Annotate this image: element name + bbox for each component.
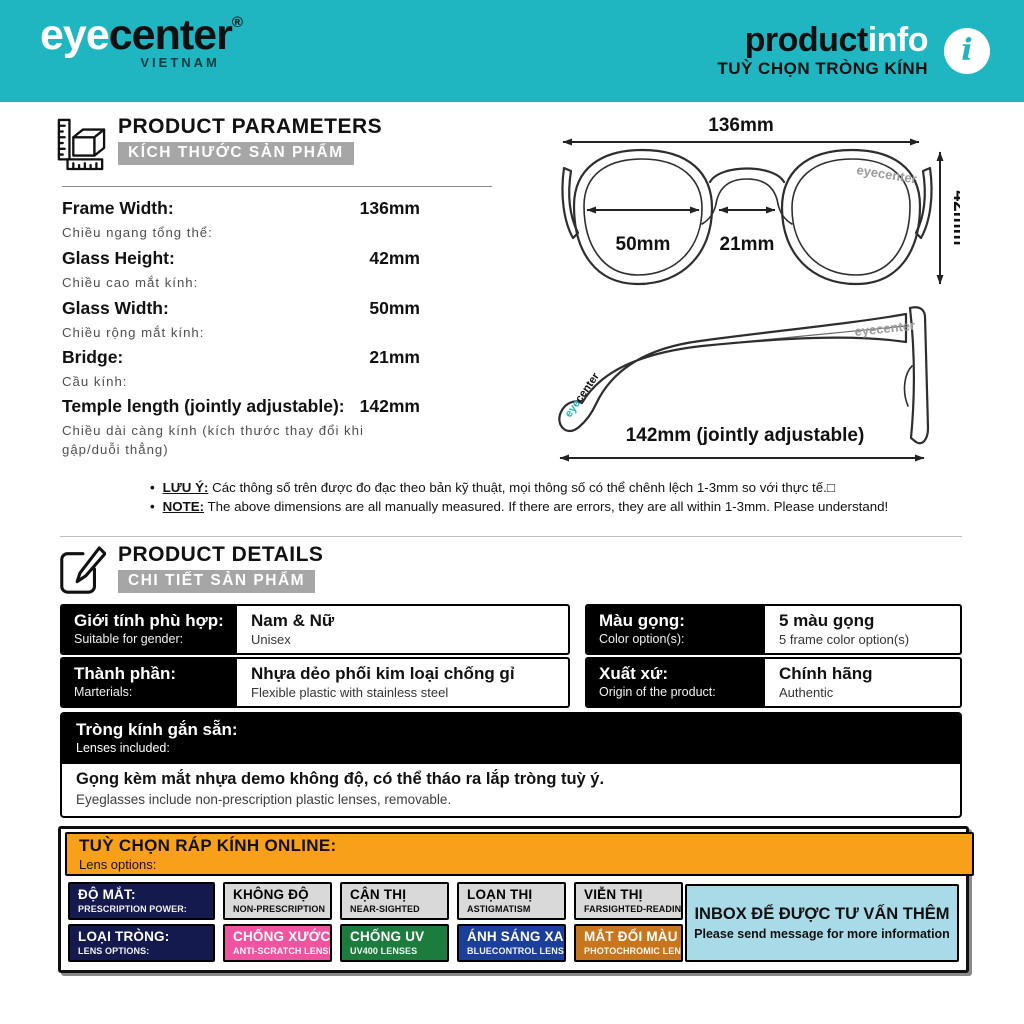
badge-lens-options: LOẠI TRÒNG: LENS OPTIONS: — [68, 924, 215, 962]
lens-options-header: TUỲ CHỌN RÁP KÍNH ONLINE: Lens options: — [65, 832, 974, 876]
detail-cell-materials: Thành phần: Marterials: Nhựa dẻo phối ki… — [60, 657, 570, 708]
registered-mark-icon: ® — [232, 14, 242, 31]
notes: • LƯU Ý: Các thông số trên được đo đạc t… — [150, 479, 890, 516]
param-row-bridge: Bridge: Cầu kính: 21mm — [62, 347, 420, 391]
param-row-temple-length: Temple length (jointly adjustable): Chiề… — [62, 396, 420, 459]
param-row-frame-width: Frame Width: Chiều ngang tổng thể: 136mm — [62, 198, 420, 242]
bridge-label: 21mm — [720, 234, 775, 255]
lenses-included-label: Tròng kính gắn sẵn: — [76, 720, 946, 740]
parameters-subtitle-badge: KÍCH THƯỚC SẢN PHẨM — [118, 142, 354, 165]
lens-width-label: 50mm — [616, 234, 671, 255]
prescription-row: ĐỘ MẮT: PRESCRIPTION POWER: KHÔNG ĐỘ NON… — [68, 882, 683, 920]
details-section-header: PRODUCT DETAILS CHI TIẾT SẢN PHẨM — [56, 544, 323, 598]
lenses-included-value-en: Eyeglasses include non-prescription plas… — [76, 792, 946, 807]
details-subtitle-badge: CHI TIẾT SẢN PHẨM — [118, 570, 315, 593]
info-icon: i — [944, 28, 990, 74]
badge-bluecontrol: ÁNH SÁNG XANH BLUECONTROL LENSES — [457, 924, 566, 962]
lenses-included-label-en: Lenses included: — [76, 741, 946, 755]
ruler-cube-icon — [56, 116, 106, 172]
brand-wordmark: eyecenter® — [40, 12, 242, 59]
badge-prescription-power: ĐỘ MẮT: PRESCRIPTION POWER: — [68, 882, 215, 920]
glasses-side-diagram: eyecenter eyecenter 142mm (jointly adjus… — [550, 300, 960, 470]
divider — [62, 186, 492, 187]
badge-photochromic: MẮT ĐỔI MÀU PHOTOCHROMIC LENSES — [574, 924, 683, 962]
temple-length-label: 142mm (jointly adjustable) — [626, 425, 865, 446]
brand-logo: eyecenter® VIETNAM — [40, 12, 242, 70]
front-width-label: 136mm — [708, 115, 774, 136]
note-english: • NOTE: The above dimensions are all man… — [150, 498, 890, 517]
badge-near-sighted: CẬN THỊ NEAR-SIGHTED — [340, 882, 449, 920]
parameters-section-header: PRODUCT PARAMETERS KÍCH THƯỚC SẢN PHẨM — [56, 116, 382, 172]
lens-type-row: LOẠI TRÒNG: LENS OPTIONS: CHỐNG XƯỚC ANT… — [68, 924, 683, 962]
page-title: productinfo — [717, 23, 928, 59]
param-row-glass-height: Glass Height: Chiều cao mắt kính: 42mm — [62, 248, 420, 292]
badge-non-prescription: KHÔNG ĐỘ NON-PRESCRIPTION — [223, 882, 332, 920]
detail-cell-gender: Giới tính phù hợp: Suitable for gender: … — [60, 604, 570, 655]
product-info-sheet: eyecenter® VIETNAM productinfo TUỲ CHỌN … — [0, 0, 1024, 1024]
parameters-title: PRODUCT PARAMETERS — [118, 116, 382, 137]
detail-cell-origin: Xuất xứ: Origin of the product: Chính hã… — [585, 657, 962, 708]
inbox-cta: INBOX ĐỂ ĐƯỢC TƯ VẤN THÊM Please send me… — [685, 884, 959, 962]
brand-center: center — [109, 11, 232, 59]
front-height-label: 42mm — [949, 191, 960, 246]
title-product: product — [745, 21, 868, 59]
badge-astigmatism: LOẠN THỊ ASTIGMATISM — [457, 882, 566, 920]
header: eyecenter® VIETNAM productinfo TUỲ CHỌN … — [0, 0, 1024, 102]
badge-farsighted: VIỄN THỊ FARSIGHTED-READING — [574, 882, 683, 920]
lens-options-box: TUỲ CHỌN RÁP KÍNH ONLINE: Lens options: … — [58, 826, 969, 973]
divider — [60, 536, 962, 537]
badge-anti-scratch: CHỐNG XƯỚC ANTI-SCRATCH LENSES — [223, 924, 332, 962]
badge-uv400: CHỐNG UV UV400 LENSES — [340, 924, 449, 962]
header-right: productinfo TUỲ CHỌN TRÒNG KÍNH i — [717, 0, 990, 102]
glasses-front-diagram: 136mm 50mm 21mm eyecenter 42mm — [550, 112, 960, 304]
detail-cell-colors: Màu gọng: Color option(s): 5 màu gọng 5 … — [585, 604, 962, 655]
product-info-title-block: productinfo TUỲ CHỌN TRÒNG KÍNH — [717, 23, 928, 80]
lenses-included-value: Gọng kèm mắt nhựa demo không độ, có thể … — [76, 770, 946, 789]
note-vietnamese: • LƯU Ý: Các thông số trên được đo đạc t… — [150, 479, 890, 498]
lenses-included-box: Tròng kính gắn sẵn: Lenses included: Gọn… — [60, 712, 962, 818]
page-subtitle: TUỲ CHỌN TRÒNG KÍNH — [717, 59, 928, 79]
brand-eye: eye — [40, 11, 109, 59]
details-title: PRODUCT DETAILS — [118, 544, 323, 565]
param-row-glass-width: Glass Width: Chiều rộng mắt kính: 50mm — [62, 298, 420, 342]
title-info: info — [868, 21, 928, 59]
front-watermark: eyecenter — [856, 162, 918, 186]
edit-pencil-icon — [56, 544, 106, 598]
details-grid: Giới tính phù hợp: Suitable for gender: … — [60, 604, 962, 710]
